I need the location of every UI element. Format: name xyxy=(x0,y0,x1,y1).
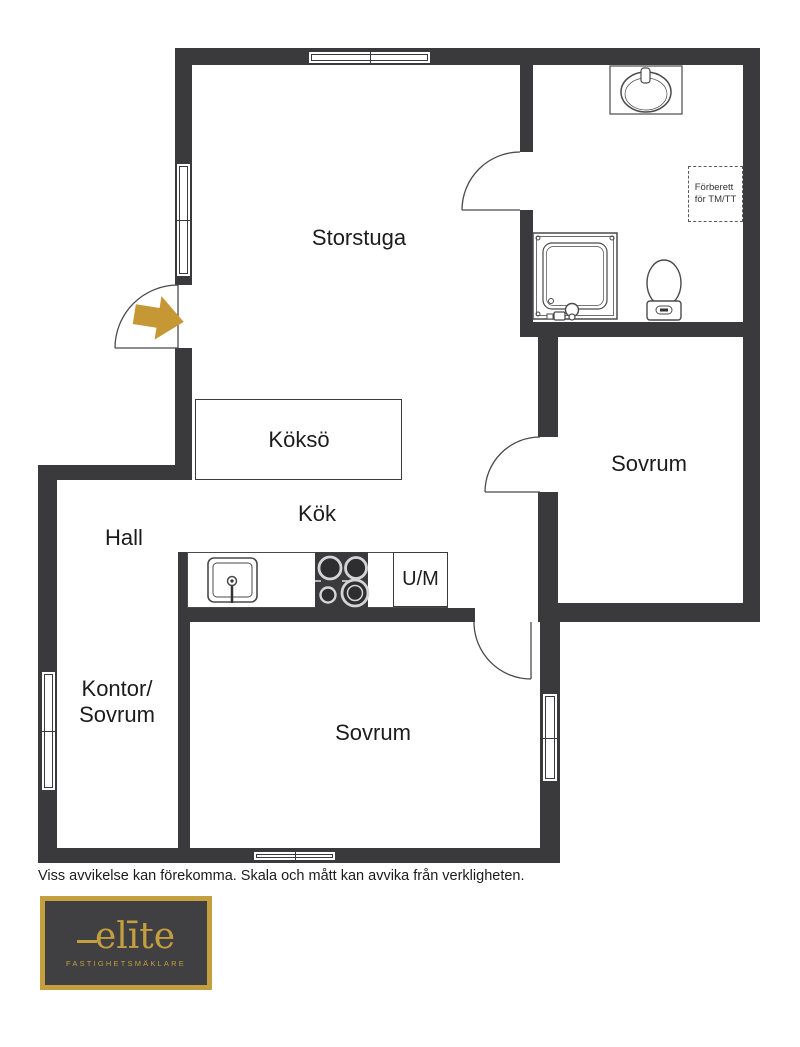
wall-bathroom-left-upper xyxy=(520,65,533,152)
wall-bathroom-left-lower xyxy=(520,210,533,322)
room-label-kok: Kök xyxy=(298,501,336,527)
window-left-upper xyxy=(175,162,192,278)
room-label-kokso: Köksö xyxy=(268,427,329,453)
toilet-fixture xyxy=(647,260,681,320)
dishwasher-unit: U/M xyxy=(393,552,448,607)
wall-left-mid xyxy=(175,348,192,480)
forberett-tm-tt-area: Förberett för TM/TT xyxy=(688,166,743,222)
brand-logo: elīte FASTIGHETSMÄKLARE xyxy=(40,896,212,990)
window-left-lower xyxy=(40,670,57,792)
floor-plan: U/M Förberett för TM/TT xyxy=(0,0,800,866)
wall-mid-divider-upper xyxy=(538,337,558,437)
door-arc-sovrum-bottom xyxy=(474,622,531,679)
entry-arrow-icon xyxy=(131,292,187,343)
brand-name: elīte xyxy=(95,919,175,955)
um-label: U/M xyxy=(402,568,439,591)
brand-wordmark: elīte xyxy=(77,919,175,955)
shower-fixture xyxy=(533,233,617,320)
bathroom-sink-fixture xyxy=(610,66,682,114)
wall-top xyxy=(175,48,760,65)
disclaimer-text: Viss avvikelse kan förekomma. Skala och … xyxy=(38,868,525,884)
window-right-lower xyxy=(541,692,559,783)
wall-under-counter xyxy=(178,608,475,622)
wall-sovrum-right-bottom xyxy=(540,603,760,622)
window-top xyxy=(307,50,432,65)
room-label-sovrum-right: Sovrum xyxy=(611,451,687,477)
wall-mid-divider-lower xyxy=(538,492,558,622)
door-arc-bathroom xyxy=(462,152,520,210)
window-bottom xyxy=(252,850,337,862)
brand-tagline: FASTIGHETSMÄKLARE xyxy=(66,959,186,968)
room-label-sovrum-bottom: Sovrum xyxy=(335,720,411,746)
wall-bathroom-bottom xyxy=(520,322,760,337)
brand-crossbar xyxy=(77,940,97,943)
door-arc-sovrum-right xyxy=(485,437,540,492)
wall-hall-top xyxy=(38,465,192,480)
forberett-label: Förberett för TM/TT xyxy=(695,182,737,206)
floorplan-page: { "colors": { "wall": "#3a3a3c", "fixtur… xyxy=(0,0,800,1047)
room-label-kontor-sovrum: Kontor/ Sovrum xyxy=(79,676,155,728)
wall-left-lower xyxy=(38,465,57,863)
door-arc-entry xyxy=(115,285,178,348)
room-label-hall: Hall xyxy=(105,525,143,551)
room-label-storstuga: Storstuga xyxy=(312,225,406,251)
